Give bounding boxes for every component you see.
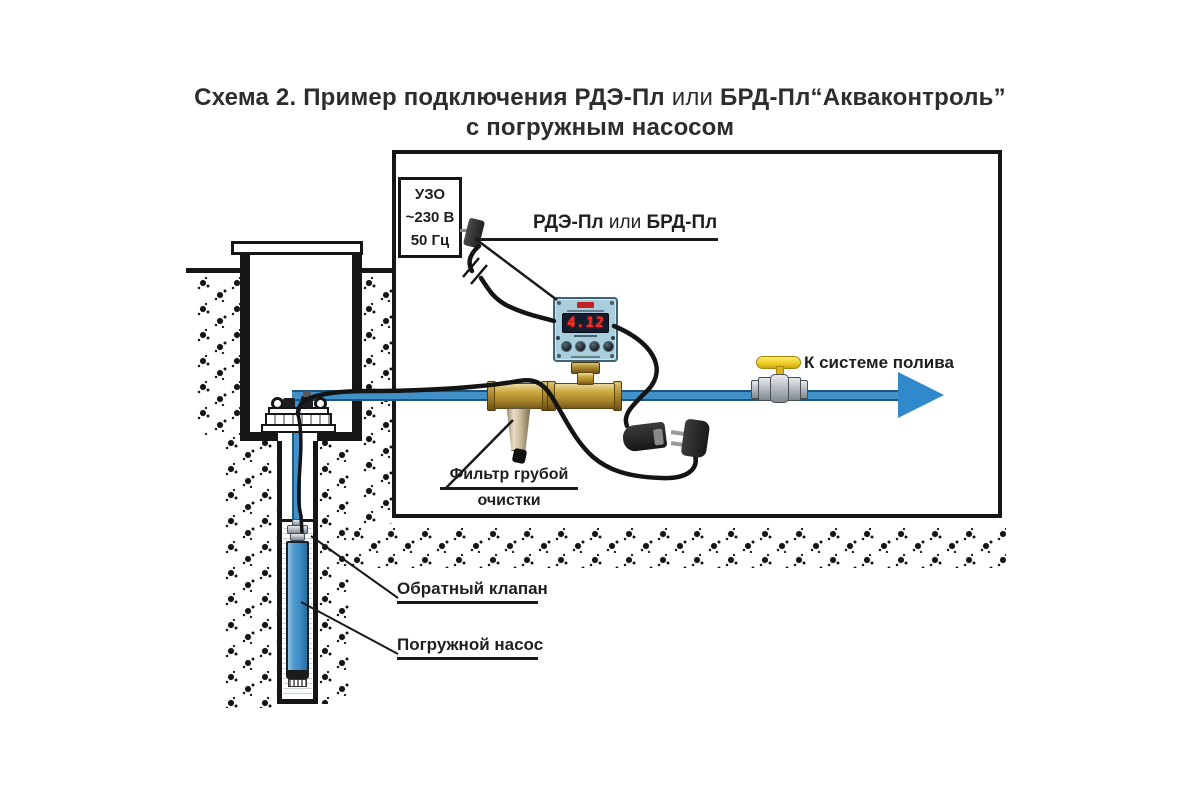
socket-face — [653, 429, 664, 446]
check-valve-label-leader — [311, 536, 398, 598]
pump-label-leader — [301, 602, 398, 654]
diagram-canvas: 4.12 УЗО ~230 В 50 Гц — [0, 0, 1200, 800]
pump-label-underline — [397, 657, 538, 660]
controller-label: РДЭ-Пл или БРД-Пл — [533, 212, 717, 234]
title-part3: БРД-Пл“Акваконтроль” — [713, 84, 1006, 111]
controller-output-cable — [614, 326, 657, 426]
pump-label-text: Погружной насос — [397, 635, 538, 655]
filter-label-line1: Фильтр грубой — [440, 466, 578, 484]
controller-label-part1: РДЭ-Пл — [533, 212, 609, 233]
filter-label-underline — [440, 487, 578, 490]
pump-cable-in-well — [298, 414, 302, 532]
check-valve-label: Обратный клапан — [397, 579, 538, 604]
power-cable-lower — [481, 278, 554, 321]
title-line2-text: с погружным насосом — [466, 114, 734, 141]
title-part1: Схема 2. Пример подключения РДЭ-Пл — [194, 84, 672, 111]
irrigation-label: К системе полива — [804, 353, 954, 373]
controller-label-underline — [475, 238, 718, 241]
diagram-title-line1: Схема 2. Пример подключения РДЭ-Пл или Б… — [0, 84, 1200, 112]
diagram-title-line2: с погружным насосом — [0, 114, 1200, 142]
pump-label: Погружной насос — [397, 635, 538, 660]
controller-label-part2: или — [609, 212, 641, 233]
controller-label-part3: БРД-Пл — [641, 212, 717, 233]
filter-label: Фильтр грубой очистки — [440, 466, 578, 510]
check-valve-label-underline — [397, 601, 538, 604]
check-valve-label-text: Обратный клапан — [397, 579, 538, 599]
title-part2: или — [672, 84, 713, 111]
filter-label-line2: очистки — [440, 492, 578, 510]
